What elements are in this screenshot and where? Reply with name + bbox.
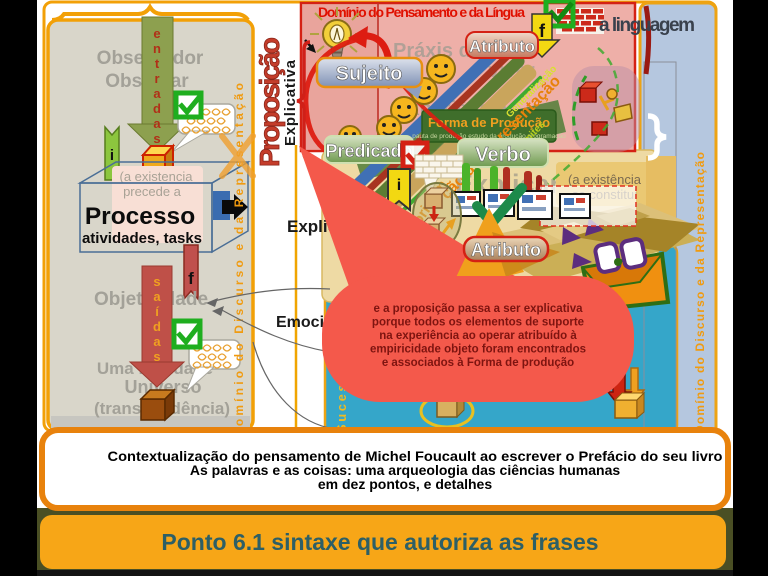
svg-text:d: d: [153, 319, 161, 334]
svg-text:Ponto 6.1 sintaxe que autoriza: Ponto 6.1 sintaxe que autoriza as frases: [161, 529, 598, 555]
svg-text:e a proposição passa a ser exp: e a proposição passa a ser explicativa: [373, 303, 583, 315]
svg-text:t: t: [155, 56, 160, 71]
svg-text:(a existência: (a existência: [568, 172, 642, 187]
svg-text:Verbo: Verbo: [475, 144, 531, 166]
svg-text:Predicado: Predicado: [325, 141, 412, 161]
svg-text:a: a: [153, 86, 161, 101]
svg-text:precede a: precede a: [123, 184, 182, 199]
svg-text:s: s: [153, 274, 160, 289]
svg-text:Domínio do Discurso e da Repre: Domínio do Discurso e da Representação: [232, 83, 246, 438]
svg-text:i: i: [110, 147, 114, 164]
svg-text:f: f: [539, 21, 546, 41]
svg-text:a: a: [153, 334, 161, 349]
svg-text:Processo: Processo: [85, 203, 195, 230]
svg-text:e associados à Forma de produç: e associados à Forma de produção: [382, 357, 574, 369]
svg-text:Domínio do Pensamento e da Lín: Domínio do Pensamento e da Língua: [318, 4, 525, 20]
svg-text:Sujeito: Sujeito: [336, 63, 403, 85]
svg-text:porque todos os elementos de s: porque todos os elementos de suporte: [372, 317, 584, 329]
svg-text:Atributo: Atributo: [471, 240, 541, 260]
svg-text:Atributo: Atributo: [469, 37, 535, 56]
svg-text:s: s: [153, 131, 160, 146]
svg-text:a: a: [153, 289, 161, 304]
svg-text:i: i: [397, 177, 401, 194]
svg-text:empiricidade objeto foram enco: empiricidade objeto foram encontrados: [370, 344, 586, 356]
svg-text:n: n: [153, 41, 161, 56]
svg-text:em dez pontos, e detalhes: em dez pontos, e detalhes: [318, 476, 492, 492]
svg-text:e: e: [153, 26, 160, 41]
svg-text:na experiência ao operar atrib: na experiência ao operar atribuído à: [379, 330, 577, 342]
svg-text:Explicativa: Explicativa: [282, 59, 299, 146]
svg-text:r: r: [154, 71, 159, 86]
svg-text:f: f: [188, 269, 194, 288]
svg-text:(a existencia: (a existencia: [120, 169, 194, 184]
svg-text:a linguagem: a linguagem: [599, 15, 695, 36]
svg-text:d: d: [153, 101, 161, 116]
svg-text:í: í: [155, 304, 159, 319]
svg-text:Proposição: Proposição: [254, 37, 285, 167]
svg-text:s: s: [153, 349, 160, 364]
svg-text:a: a: [153, 116, 161, 131]
